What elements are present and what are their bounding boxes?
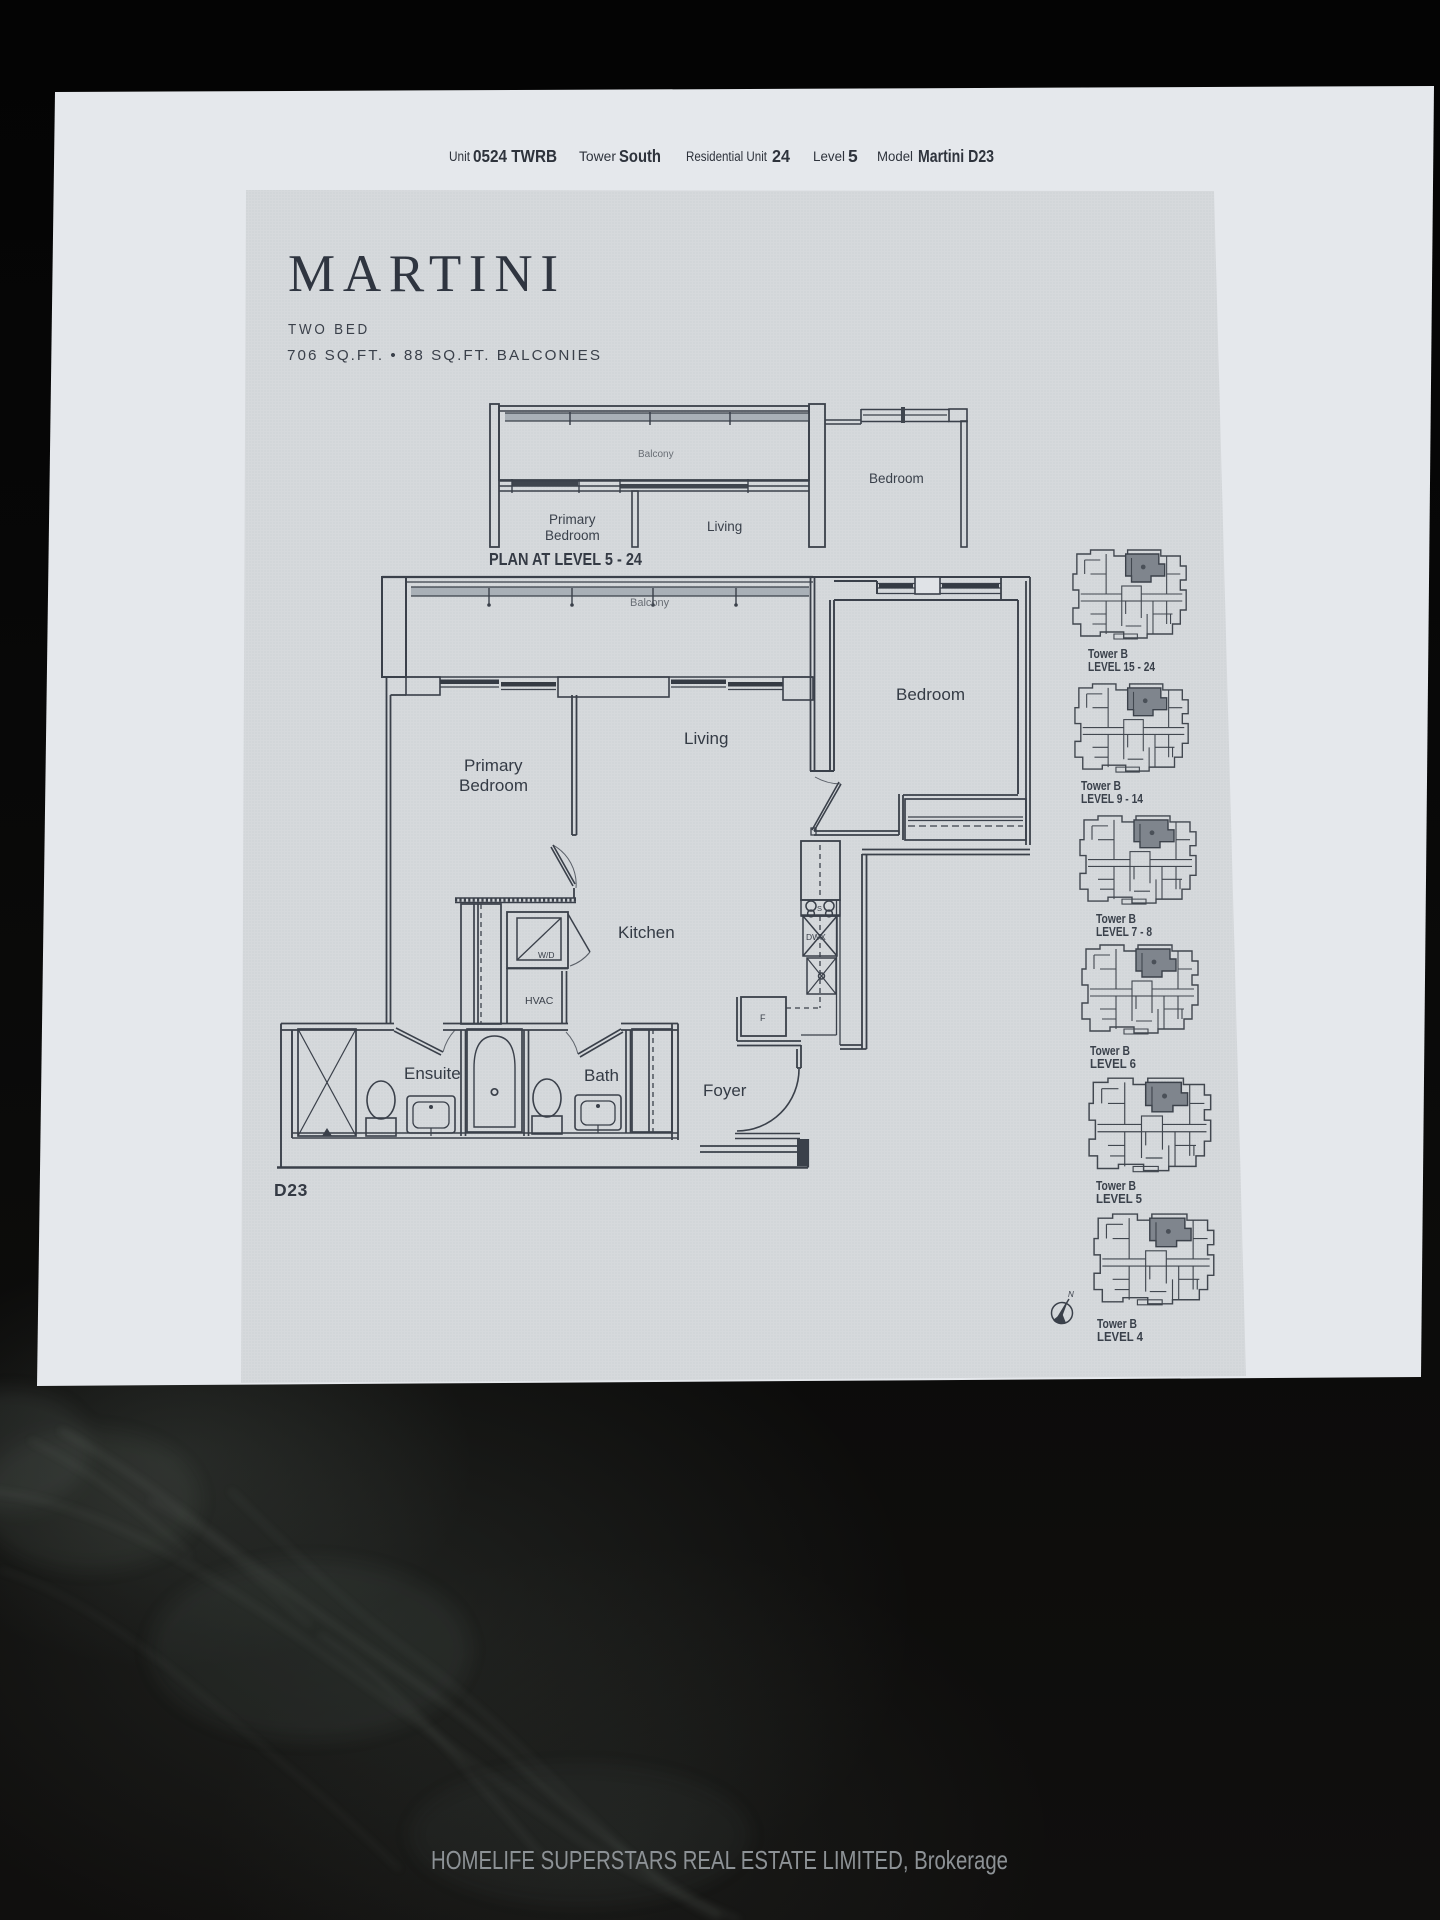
svg-text:Level: Level: [813, 149, 845, 164]
svg-text:PLAN AT LEVEL 5 - 24: PLAN AT LEVEL 5 - 24: [489, 549, 642, 569]
svg-text:Tower B: Tower B: [1081, 779, 1121, 793]
svg-text:LEVEL 4: LEVEL 4: [1097, 1330, 1143, 1344]
svg-text:S: S: [817, 904, 822, 913]
svg-text:Tower: Tower: [579, 149, 617, 164]
svg-text:TWO BED: TWO BED: [288, 322, 370, 338]
svg-text:Bedroom: Bedroom: [896, 685, 965, 704]
svg-text:Foyer: Foyer: [703, 1081, 747, 1100]
svg-text:Tower B: Tower B: [1096, 912, 1136, 926]
svg-text:HOMELIFE SUPERSTARS REAL ESTAT: HOMELIFE SUPERSTARS REAL ESTATE LIMITED,…: [431, 1845, 1008, 1875]
svg-text:HVAC: HVAC: [525, 995, 554, 1007]
svg-text:Tower B: Tower B: [1090, 1044, 1130, 1058]
svg-text:5: 5: [848, 146, 858, 166]
svg-text:Bedroom: Bedroom: [459, 776, 528, 795]
svg-text:W/D: W/D: [538, 950, 555, 960]
svg-text:LEVEL 9 - 14: LEVEL 9 - 14: [1081, 792, 1143, 806]
svg-text:24: 24: [772, 146, 790, 166]
svg-text:Tower B: Tower B: [1096, 1179, 1136, 1193]
svg-text:LEVEL 6: LEVEL 6: [1090, 1057, 1136, 1071]
svg-text:D23: D23: [274, 1180, 308, 1200]
svg-text:Living: Living: [684, 729, 728, 748]
svg-text:MARTINI: MARTINI: [288, 245, 566, 303]
svg-text:N: N: [1068, 1290, 1074, 1299]
svg-text:F: F: [760, 1013, 766, 1023]
svg-text:LEVEL 7 - 8: LEVEL 7 - 8: [1096, 925, 1152, 939]
svg-text:0524 TWRB: 0524 TWRB: [473, 146, 557, 166]
svg-text:Bath: Bath: [584, 1066, 619, 1085]
svg-text:Ensuite: Ensuite: [404, 1064, 461, 1083]
svg-text:Bedroom: Bedroom: [869, 471, 924, 486]
svg-text:South: South: [619, 146, 661, 166]
svg-text:Tower B: Tower B: [1088, 647, 1128, 661]
svg-text:LEVEL 5: LEVEL 5: [1096, 1192, 1142, 1206]
svg-text:Bedroom: Bedroom: [545, 528, 600, 543]
svg-text:DWX: DWX: [806, 932, 826, 942]
svg-text:Kitchen: Kitchen: [618, 923, 675, 942]
svg-text:LEVEL 15 - 24: LEVEL 15 - 24: [1088, 660, 1155, 674]
svg-text:706 SQ.FT. • 88 SQ.FT. BALCONI: 706 SQ.FT. • 88 SQ.FT. BALCONIES: [287, 347, 602, 364]
svg-text:Living: Living: [707, 519, 742, 534]
svg-text:Martini D23: Martini D23: [918, 146, 994, 166]
svg-text:Tower B: Tower B: [1097, 1317, 1137, 1331]
svg-text:Primary: Primary: [549, 512, 596, 527]
svg-text:Balcony: Balcony: [638, 449, 674, 460]
svg-text:Residential Unit: Residential Unit: [686, 149, 767, 164]
svg-text:Primary: Primary: [464, 756, 523, 775]
svg-text:Model: Model: [877, 149, 913, 164]
svg-text:Balcony: Balcony: [630, 597, 670, 609]
svg-text:Unit: Unit: [449, 149, 470, 164]
